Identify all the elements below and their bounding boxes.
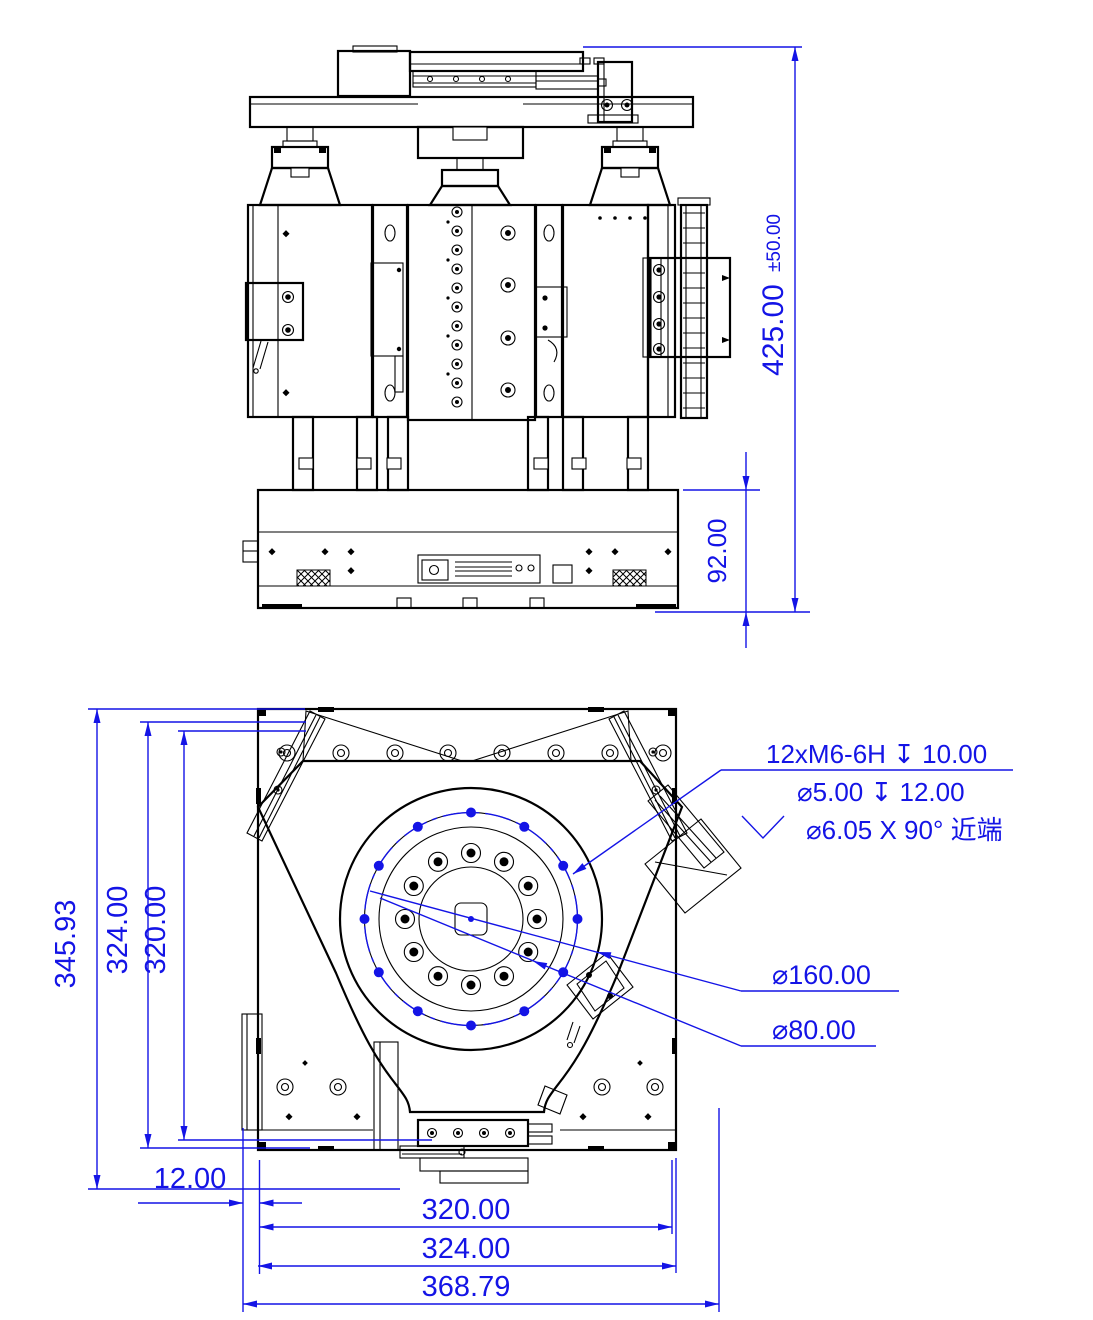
drawing-sheet: 425.00 ±50.00 92.00 <box>0 0 1093 1320</box>
dim-plate-depth-value: 324.00 <box>102 886 134 975</box>
callout-thread: 12xM6-6H ↧ 10.00 ⌀5.00 ↧ 12.00 ⌀6.05 X 9… <box>573 739 1013 874</box>
base-plate <box>256 707 677 1151</box>
top-view <box>242 707 741 1183</box>
countersink-icon <box>742 816 784 838</box>
dim-total-height-tolerance: ±50.00 <box>764 214 785 272</box>
dim-hole-span-width: 320.00 <box>260 1194 673 1231</box>
fastener-strip <box>446 207 462 407</box>
dim-hole-span-depth: 320.00 <box>140 731 188 1140</box>
dim-edge-offset-value: 12.00 <box>154 1163 227 1195</box>
legs <box>293 417 648 490</box>
dim-edge-offset: 12.00 <box>138 1163 302 1207</box>
rotated-block-right <box>567 953 633 1048</box>
engineering-drawing: 425.00 ±50.00 92.00 <box>0 0 1093 1320</box>
dim-hole-span-depth-value: 320.00 <box>140 886 172 975</box>
base <box>243 490 678 609</box>
dim-base-height-value: 92.00 <box>702 518 732 583</box>
callout-thread-line3: ⌀6.05 X 90° 近端 <box>806 815 1003 845</box>
top-view-dimensions: 345.93 324.00 320.00 12.00 320.00 324.00 <box>50 709 1013 1312</box>
callout-thread-line1: 12xM6-6H ↧ 10.00 <box>766 739 987 769</box>
side-rail-bracket-right <box>645 785 741 913</box>
callout-bolt-circle: ⌀160.00 <box>370 891 899 991</box>
plate-screws-top <box>279 745 671 761</box>
front-view <box>243 46 730 609</box>
dim-overall-depth-value: 345.93 <box>50 900 82 989</box>
callout-center-bore-value: ⌀80.00 <box>772 1015 856 1045</box>
actuator-columns <box>246 198 730 420</box>
rack-strip <box>678 198 710 418</box>
top-platform <box>338 46 606 96</box>
dim-total-height: 425.00 ±50.00 <box>583 47 802 612</box>
dim-plate-width: 324.00 <box>258 1233 676 1270</box>
dim-overall-depth: 345.93 <box>50 709 101 1189</box>
callout-bolt-circle-value: ⌀160.00 <box>772 960 871 990</box>
m6-bolt-circle <box>360 808 583 1031</box>
dim-overall-width-value: 368.79 <box>422 1271 511 1303</box>
dim-hole-span-width-value: 320.00 <box>422 1194 511 1226</box>
dim-plate-width-value: 324.00 <box>422 1233 511 1265</box>
dim-overall-width: 368.79 <box>243 1271 719 1308</box>
limit-sensor-bracket <box>580 58 638 123</box>
callout-thread-line2: ⌀5.00 ↧ 12.00 <box>797 777 965 807</box>
dim-total-height-value: 425.00 <box>757 284 790 376</box>
